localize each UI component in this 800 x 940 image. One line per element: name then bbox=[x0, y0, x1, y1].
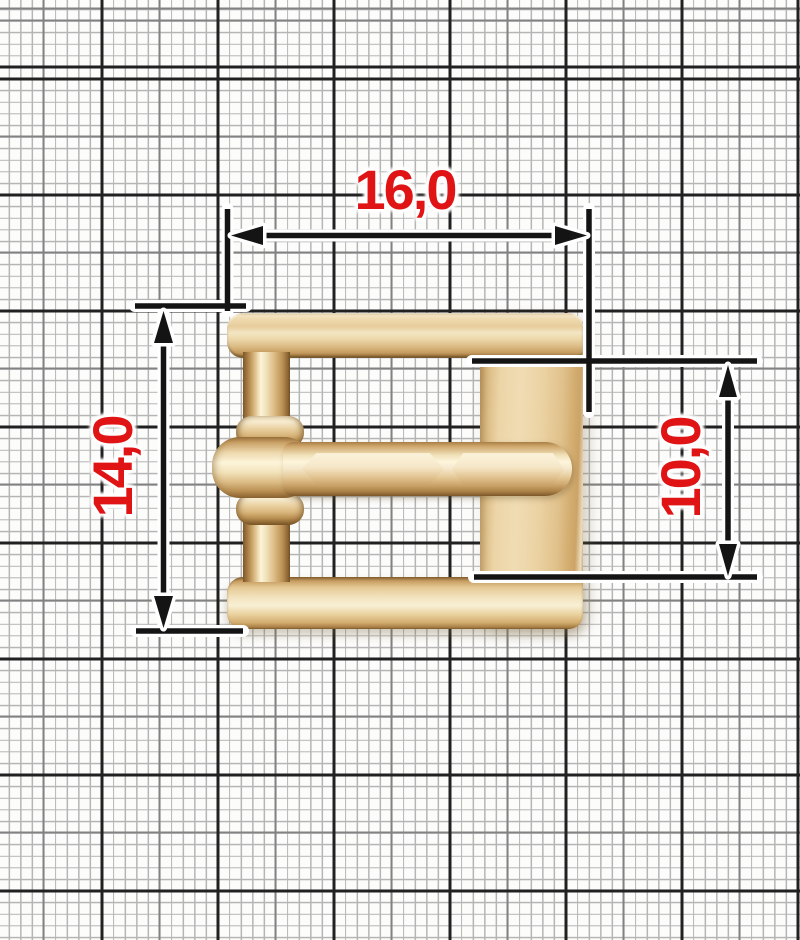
inner-height-dimension-label: 10,0 bbox=[653, 418, 709, 519]
height-dimension-label: 14,0 bbox=[85, 417, 141, 518]
width-dimension-label: 16,0 bbox=[355, 162, 456, 218]
dimension-drawing: 16,0 14,0 10,0 bbox=[0, 0, 800, 940]
